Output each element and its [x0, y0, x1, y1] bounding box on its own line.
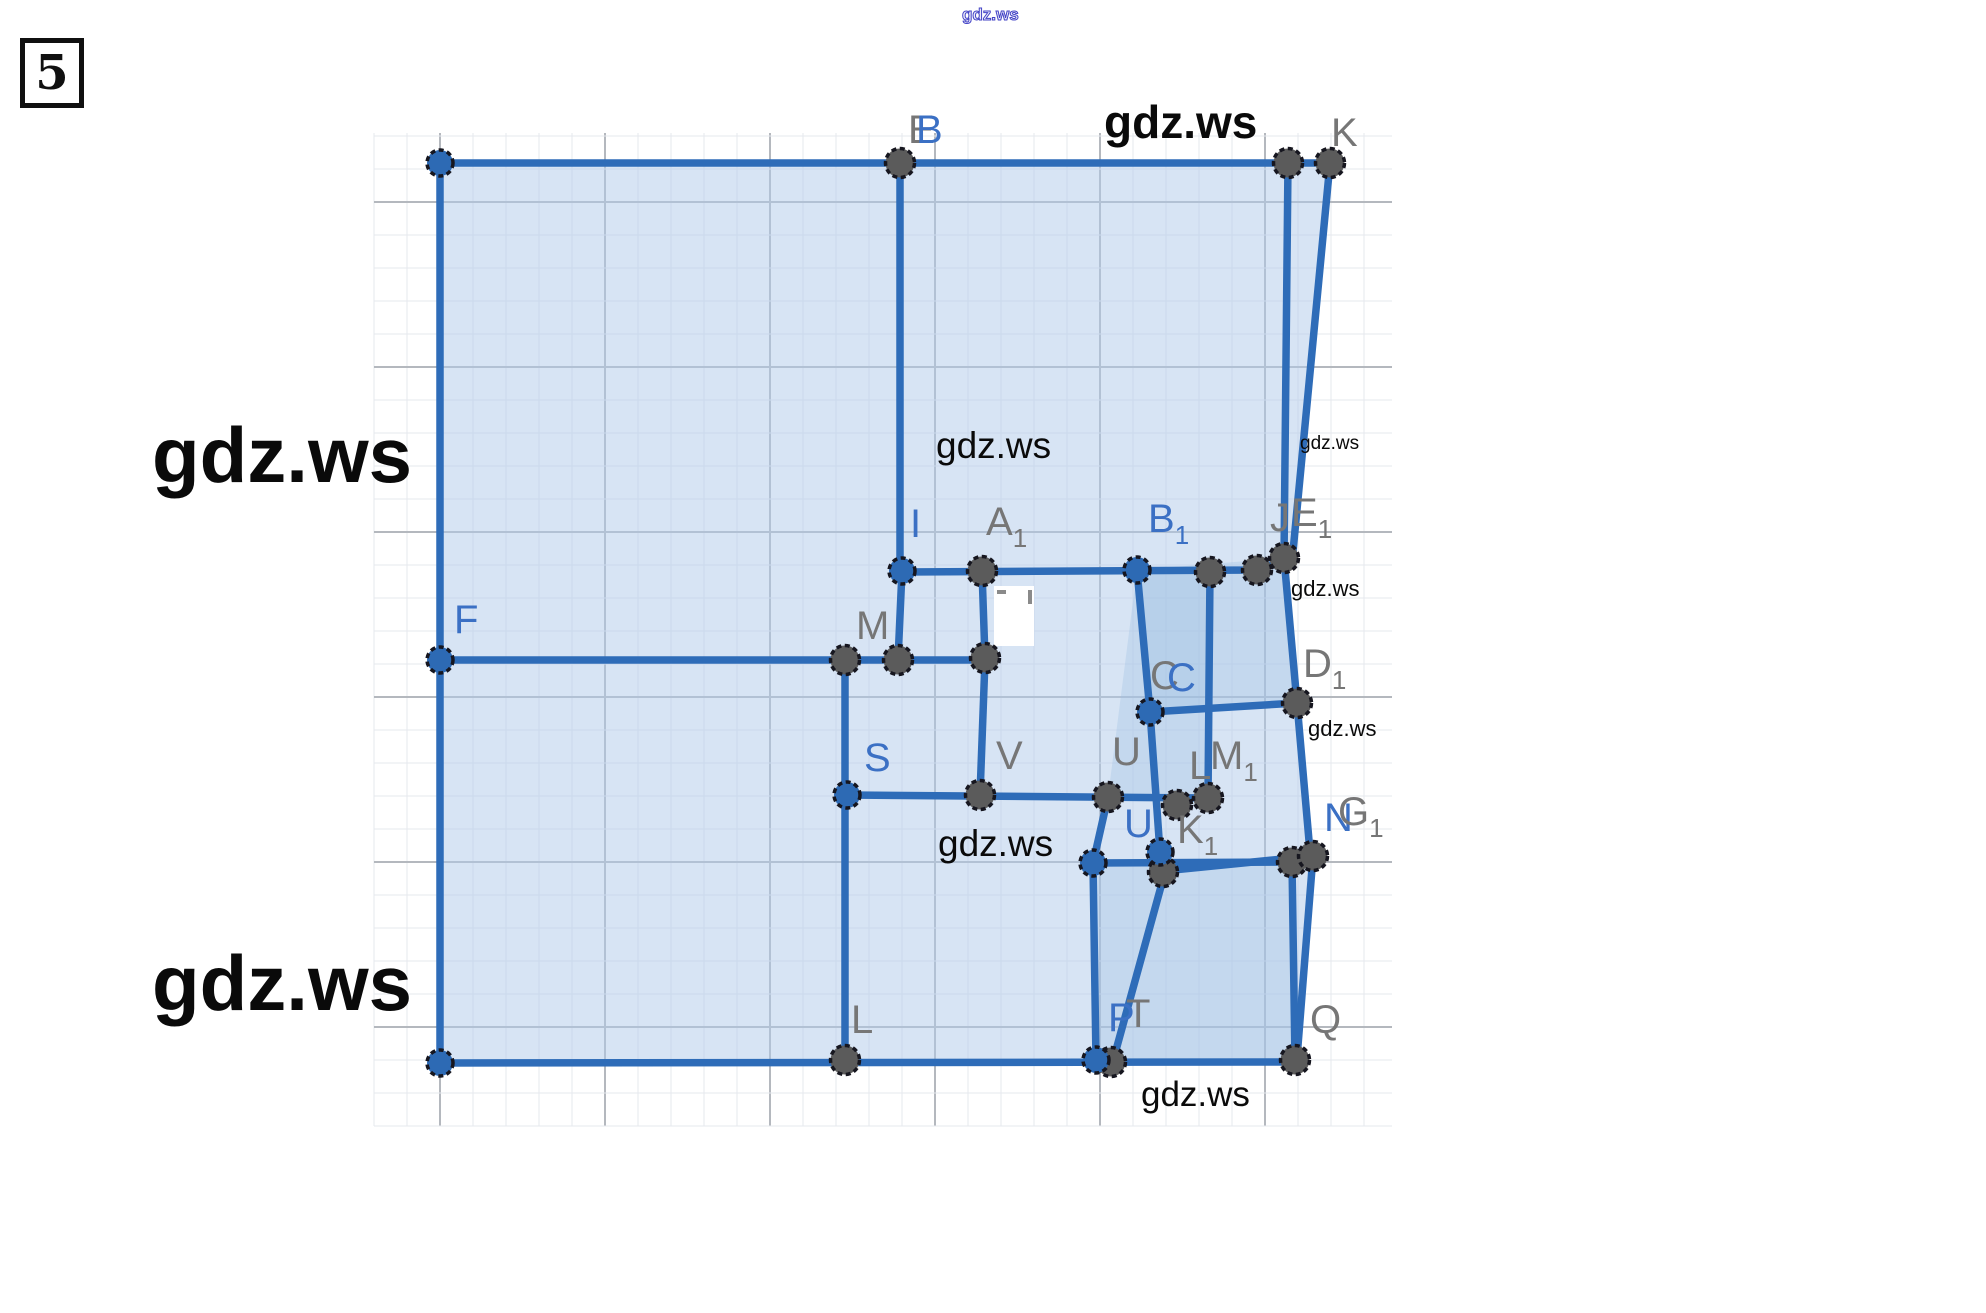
edge-segment: [440, 1062, 1295, 1063]
vertex-point-gray: [1281, 1046, 1310, 1075]
watermark: gdz.ws: [1291, 576, 1359, 601]
vertex-point-gray: [1270, 544, 1299, 573]
vertex-point-gray: [1283, 689, 1312, 718]
vertex-point-gray: [1196, 558, 1225, 587]
watermark: gdz.ws: [1141, 1075, 1250, 1114]
vertex-point-gray: [1274, 149, 1303, 178]
watermark: gdz.ws: [1308, 716, 1376, 741]
edge-segment: [980, 660, 985, 795]
vertex-label-C: C: [1167, 656, 1196, 700]
vertex-point-gray: [1243, 556, 1272, 585]
vertex-point-gray: [886, 149, 915, 178]
vertex-point-blue: [427, 1050, 453, 1076]
vertex-label-F: F: [454, 598, 478, 642]
vertex-label-Q: Q: [1310, 998, 1341, 1042]
vertex-label-L: L: [1189, 744, 1211, 788]
vertex-label-T: T: [1126, 992, 1150, 1036]
vertex-point-blue: [1080, 850, 1106, 876]
page: 5 EBKIA1B1JE1FMCCD1SVULM1UK1NG1LPTQgdz.w…: [0, 0, 1986, 1313]
watermark: gdz.ws: [152, 939, 412, 1027]
vertex-label-U: U: [1124, 802, 1153, 846]
vertex-point-gray: [831, 646, 860, 675]
vertex-label-I: I: [910, 502, 921, 546]
vertex-label-D1: D1: [1303, 642, 1346, 695]
vertex-point-gray: [831, 1046, 860, 1075]
watermark: gdz.ws: [1104, 96, 1257, 148]
vertex-point-blue: [1083, 1047, 1109, 1073]
watermark: gdz.ws: [938, 823, 1053, 864]
vertex-label-K: K: [1331, 111, 1358, 155]
vertex-label-L: L: [851, 998, 873, 1042]
vertex-point-gray: [1299, 842, 1328, 871]
watermark: gdz.ws: [936, 425, 1051, 466]
vertex-point-gray: [884, 646, 913, 675]
watermark: gdz.ws: [962, 5, 1019, 24]
vertex-label-S: S: [864, 736, 891, 780]
vertex-point-blue: [427, 150, 453, 176]
edge-segment: [1292, 862, 1295, 1060]
vertex-label-B: B: [916, 108, 943, 152]
vertex-point-gray: [971, 644, 1000, 673]
vertex-label-V: V: [996, 734, 1023, 778]
vertex-point-blue: [427, 647, 453, 673]
vertex-point-gray: [968, 557, 997, 586]
vertex-point-blue: [889, 558, 915, 584]
vertex-point-blue: [1137, 699, 1163, 725]
vertex-point-gray: [966, 781, 995, 810]
vertex-point-blue: [834, 782, 860, 808]
vertex-point-gray: [1094, 783, 1123, 812]
vertex-label-U: U: [1112, 730, 1141, 774]
watermark: gdz.ws: [152, 411, 412, 499]
geometry-figure: EBKIA1B1JE1FMCCD1SVULM1UK1NG1LPTQgdz.wsg…: [0, 0, 1986, 1313]
vertex-point-blue: [1124, 557, 1150, 583]
watermark: gdz.ws: [1300, 433, 1359, 454]
vertex-label-J: J: [1270, 496, 1290, 540]
vertex-label-M: M: [856, 604, 889, 648]
